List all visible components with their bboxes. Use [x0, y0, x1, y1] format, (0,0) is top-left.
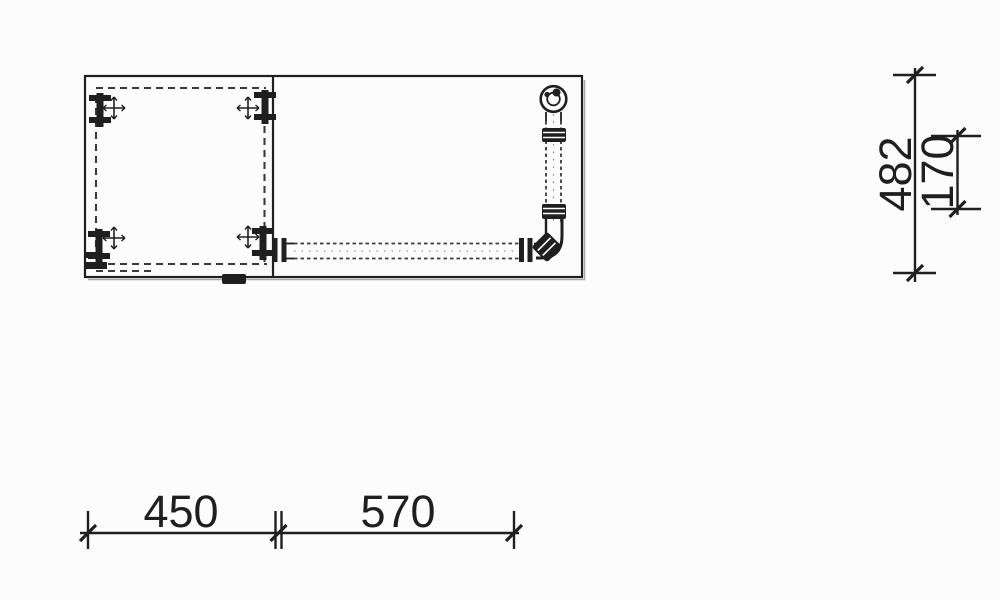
pipe-nut-lower — [542, 204, 566, 219]
dimension-right-170: 170 — [912, 128, 981, 217]
hinge-bottom-right — [252, 226, 274, 260]
mounting-cross-markers — [103, 97, 259, 249]
vanity-cabinet — [85, 76, 585, 284]
dim-label-450: 450 — [143, 486, 218, 537]
technical-drawing: 450 570 482 170 — [0, 0, 1000, 600]
cabinet-hidden-edges — [96, 88, 267, 271]
hinge-top-left — [89, 93, 111, 127]
cabinet-outline — [85, 76, 582, 277]
pipe-elbow — [531, 219, 562, 263]
cross-bottom-left — [103, 227, 125, 249]
pipe-coupling-right — [519, 238, 533, 262]
dim-label-170: 170 — [912, 134, 963, 209]
dimension-bottom: 450 570 — [80, 486, 522, 549]
drain-pipe — [273, 86, 567, 262]
pipe-coupling-left — [273, 238, 287, 262]
dim-label-570: 570 — [360, 486, 435, 537]
drain-flange — [541, 86, 567, 112]
bottom-clip — [222, 274, 246, 284]
horizontal-pipe — [273, 238, 533, 262]
pipe-nut-upper — [542, 128, 566, 142]
drawing-canvas: 450 570 482 170 — [0, 0, 1000, 600]
cabinet-shadow-edge — [88, 80, 585, 280]
